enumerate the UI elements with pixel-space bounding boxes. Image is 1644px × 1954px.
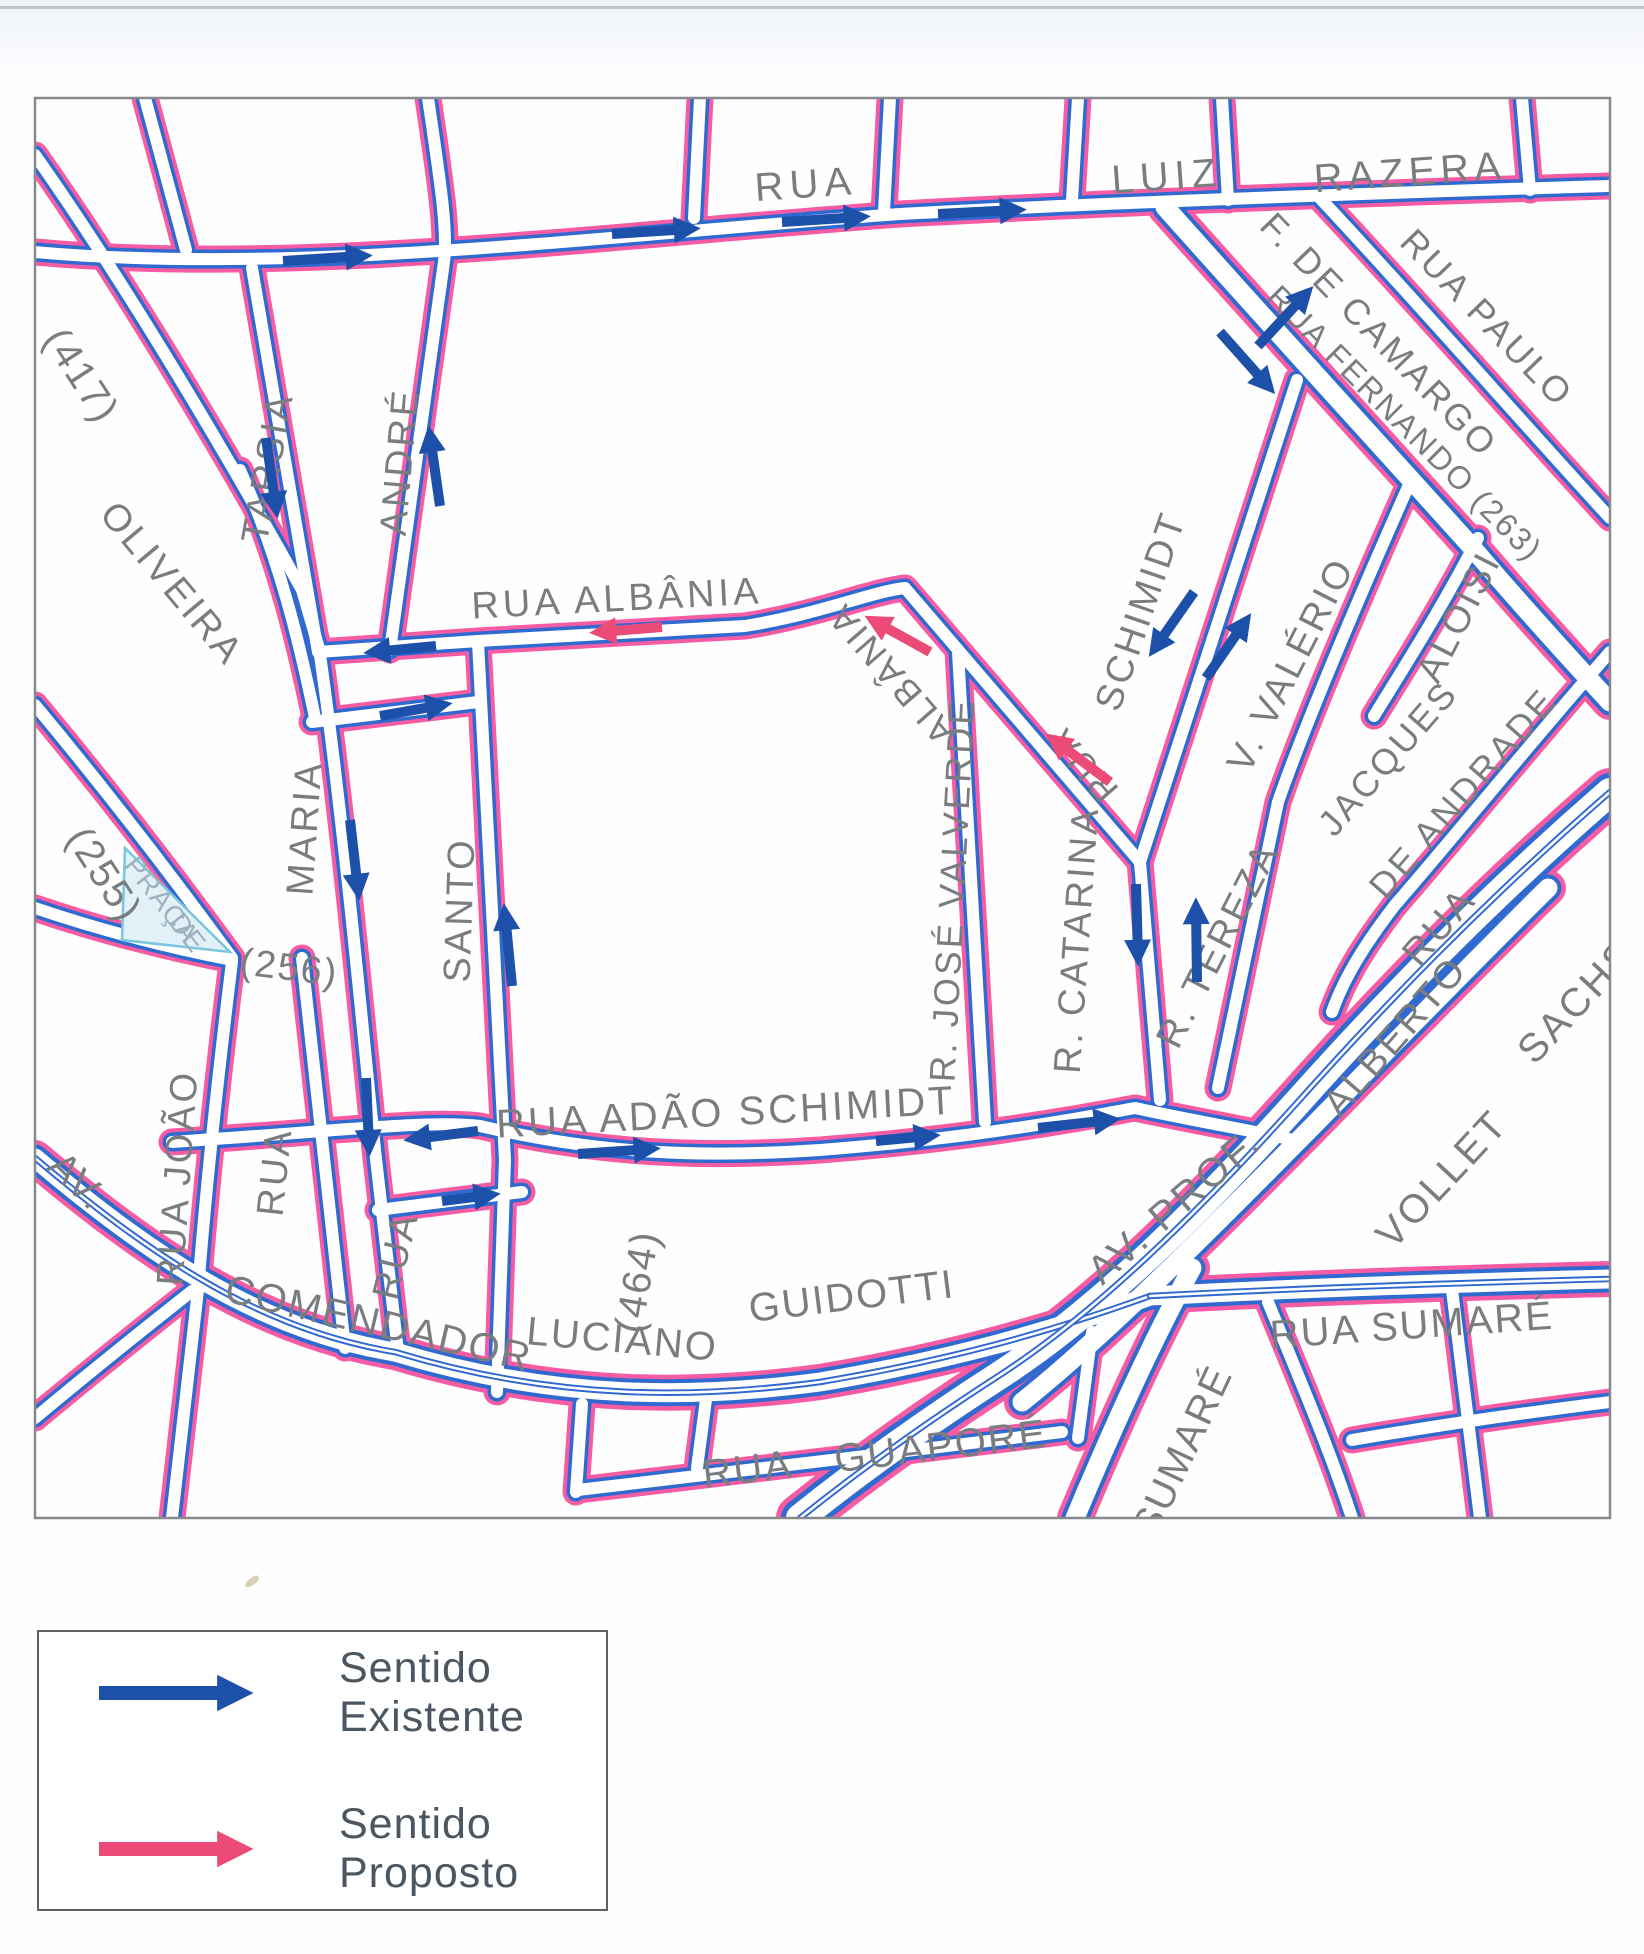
street-x-580 [576,1404,582,1492]
direction-arrow-existing [366,1078,369,1146]
direction-arrow-existing [442,1195,490,1201]
direction-arrow-existing [505,914,512,986]
legend-label-existing: Sentido Existente [339,1644,606,1742]
direction-arrow-existing [612,229,690,234]
direction-arrow-existing [1136,884,1138,956]
legend-row-proposed: Sentido Proposto [91,1800,606,1898]
street-label: RUA [700,1442,795,1497]
street-label: RUA [249,1125,300,1218]
legend-row-existing: Sentido Existente [91,1644,606,1742]
direction-arrow-existing [374,646,436,652]
direction-arrow-proposed [600,627,662,632]
street-v-145 [145,98,186,250]
street-label: LUIZ [1110,151,1223,203]
street-label: MARIA [279,759,330,897]
street-label: (256) [238,941,341,995]
street-v-razera [1522,98,1530,190]
street-v-1078 [1072,98,1078,200]
street-label: GUIDOTTI [746,1262,957,1331]
street-x-bl [35,1291,192,1418]
direction-arrow-existing [782,217,860,222]
street-label: VOLLET [1368,1102,1517,1257]
street-v-700 [694,98,700,218]
street-label: OLIVEIRA [91,494,251,674]
direction-arrow-existing [938,210,1016,214]
direction-arrow-existing [283,256,362,261]
street-label: R. CATARINA [1047,805,1108,1075]
direction-arrow-existing [578,1149,650,1154]
street-v-884 [884,98,890,212]
street-map: RUALUIZRAZERA(417)TARSIAANDRÉOLIVEIRARUA… [34,98,1644,1543]
street-label: SANTO [437,837,484,984]
legend-label-proposed: Sentido Proposto [339,1800,606,1898]
street-v-luiz [1222,98,1228,200]
direction-arrow-existing [430,436,440,506]
existing-direction-arrow-icon [91,1670,291,1716]
street-label: SACHS [1509,930,1644,1072]
direction-arrow-existing [1196,908,1197,982]
street-label: (417) [34,320,127,431]
street-rua-albania [318,588,1140,862]
street-label: RUA [753,159,858,210]
proposed-direction-arrow-icon [91,1826,291,1872]
direction-arrow-existing [876,1136,930,1141]
legend-box: Sentido Existente Sentido Proposto [37,1630,608,1911]
